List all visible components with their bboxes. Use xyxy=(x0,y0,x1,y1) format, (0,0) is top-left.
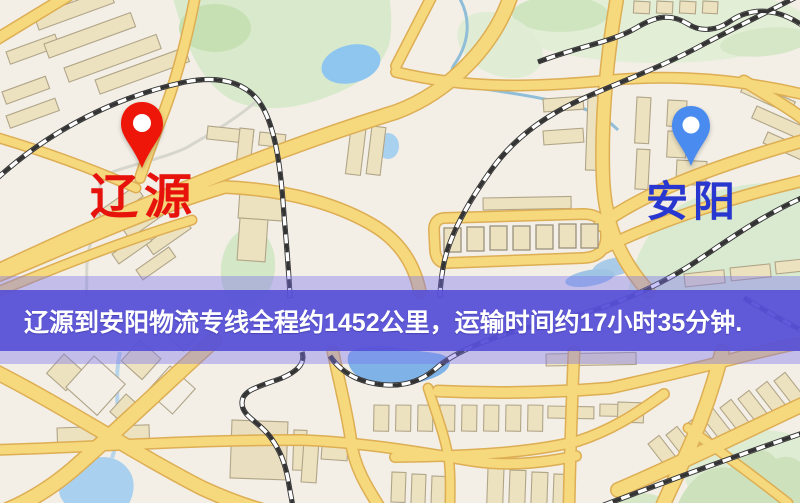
origin-city-label: 辽源 xyxy=(90,174,198,222)
route-banner-text: 辽源到安阳物流专线全程约1452公里，运输时间约17小时35分钟. xyxy=(24,303,742,339)
route-banner: 辽源到安阳物流专线全程约1452公里，运输时间约17小时35分钟. xyxy=(0,290,800,351)
map-canvas xyxy=(0,0,800,503)
map-view[interactable]: 辽源到安阳物流专线全程约1452公里，运输时间约17小时35分钟. 辽源 安阳 xyxy=(0,0,800,503)
destination-pin[interactable] xyxy=(668,104,714,175)
origin-pin[interactable] xyxy=(117,100,167,177)
depot-buildings xyxy=(444,224,598,252)
destination-pin-icon xyxy=(668,104,714,170)
origin-pin-icon xyxy=(117,100,167,172)
destination-city-label: 安阳 xyxy=(646,181,740,223)
